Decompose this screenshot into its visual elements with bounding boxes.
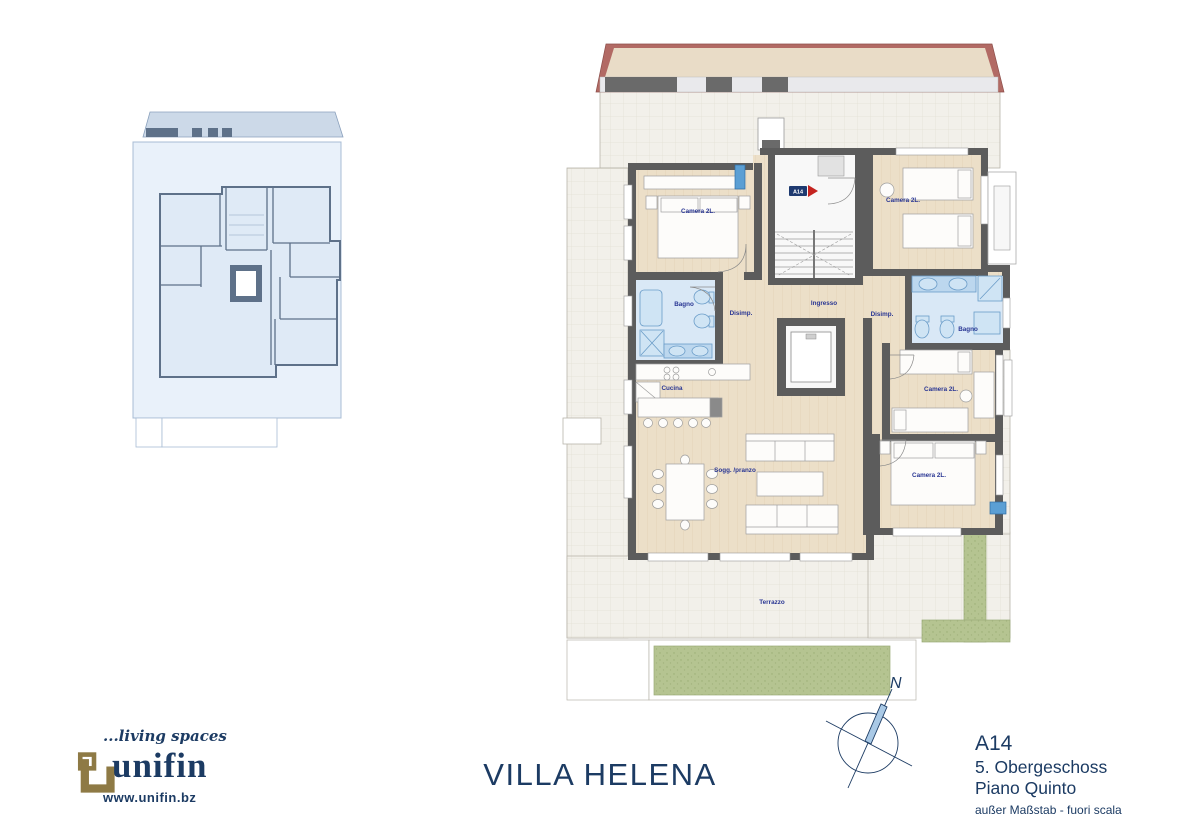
brand-website: www.unifin.bz xyxy=(103,790,196,805)
floor-name-german: 5. Obergeschoss xyxy=(975,757,1175,778)
brand-name: unifin xyxy=(112,748,208,783)
compass-north-label: N xyxy=(890,675,902,692)
floor-name-italian: Piano Quinto xyxy=(975,778,1175,799)
scale-note: außer Maßstab - fuori scala xyxy=(975,803,1175,817)
unit-number: A14 xyxy=(975,732,1175,756)
brand-logo-icon xyxy=(72,748,116,796)
brand-block: ...living spaces unifin www.unifin.bz xyxy=(60,722,290,812)
project-title: VILLA HELENA xyxy=(455,757,745,793)
compass-icon: N xyxy=(820,672,950,802)
title-block: A14 5. Obergeschoss Piano Quinto außer M… xyxy=(975,732,1175,817)
drawing-sheet: A14 Camera 2L. Camera 2L. Camera 2L. Cam… xyxy=(0,0,1200,817)
brand-tagline: ...living spaces xyxy=(103,727,227,745)
compass-needle xyxy=(865,704,887,744)
key-plan xyxy=(0,0,1200,817)
